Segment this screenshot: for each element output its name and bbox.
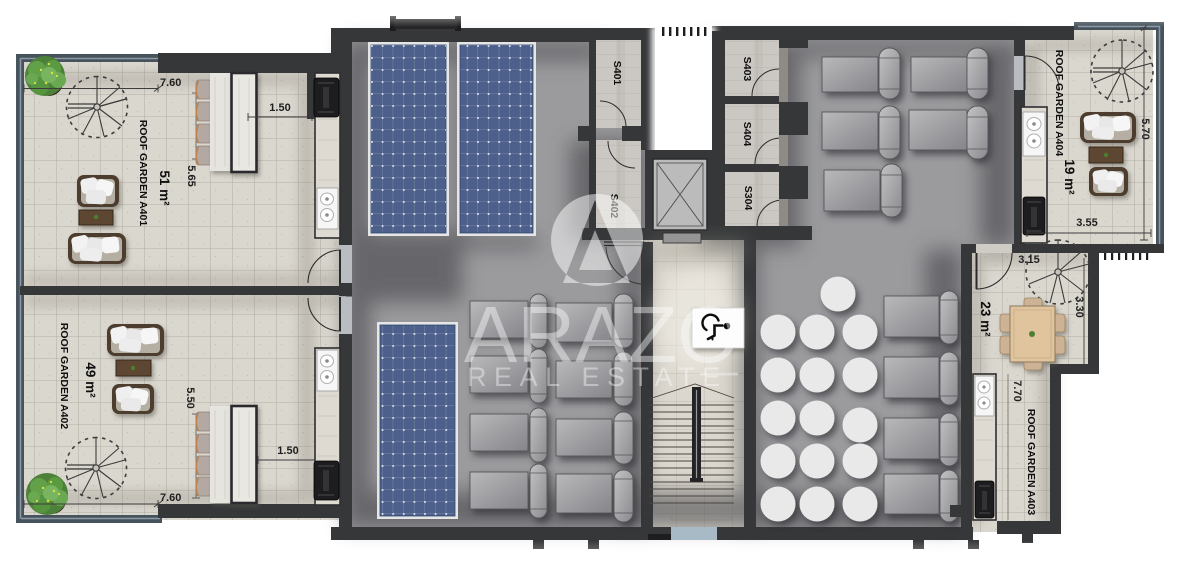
svg-text:49 m²: 49 m² — [83, 362, 98, 398]
svg-text:ROOF GARDEN A402: ROOF GARDEN A402 — [58, 323, 70, 430]
svg-text:S304: S304 — [742, 186, 754, 211]
svg-text:ROOF GARDEN A403: ROOF GARDEN A403 — [1025, 409, 1037, 516]
svg-text:S401: S401 — [611, 61, 623, 86]
svg-text:5.50: 5.50 — [184, 387, 196, 408]
svg-text:7.60: 7.60 — [160, 77, 181, 89]
svg-text:3.15: 3.15 — [1018, 254, 1039, 266]
svg-text:S403: S403 — [741, 57, 753, 82]
svg-text:S404: S404 — [741, 122, 753, 147]
svg-text:7.60: 7.60 — [160, 492, 181, 504]
svg-text:7.70: 7.70 — [1011, 380, 1023, 401]
svg-text:23 m²: 23 m² — [978, 301, 993, 337]
svg-text:3.55: 3.55 — [1076, 217, 1097, 229]
svg-text:ROOF GARDEN A401: ROOF GARDEN A401 — [137, 120, 149, 227]
svg-text:REAL ESTATE: REAL ESTATE — [467, 362, 728, 392]
svg-text:5.65: 5.65 — [185, 165, 197, 186]
svg-text:ROOF GARDEN A404: ROOF GARDEN A404 — [1053, 50, 1065, 157]
svg-text:3.30: 3.30 — [1073, 296, 1085, 317]
svg-text:1.50: 1.50 — [277, 445, 298, 457]
svg-text:51 m²: 51 m² — [157, 170, 172, 206]
svg-text:19 m²: 19 m² — [1062, 159, 1077, 195]
svg-text:1.50: 1.50 — [269, 102, 290, 114]
svg-text:5.70: 5.70 — [1139, 118, 1151, 139]
